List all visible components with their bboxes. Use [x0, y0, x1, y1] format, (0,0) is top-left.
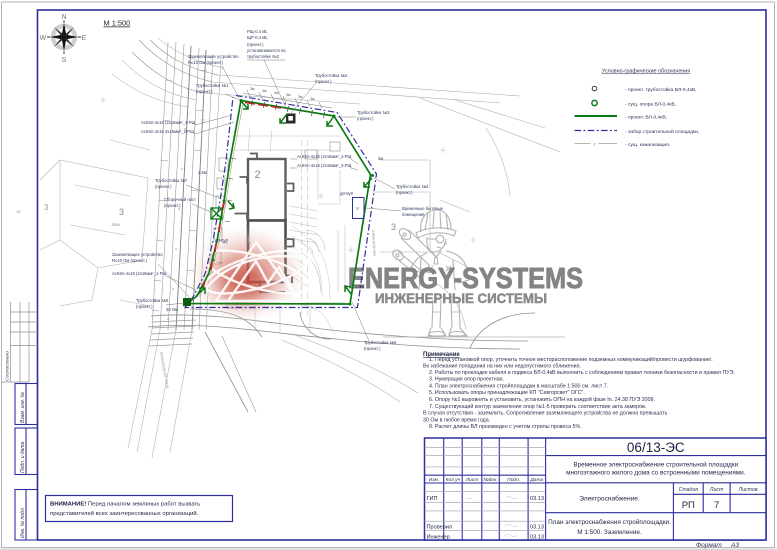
svg-text:Стадия: Стадия	[679, 487, 699, 493]
svg-text:ИНЖЕНЕРНЫЕ СИСТЕМЫ: ИНЖЕНЕРНЫЕ СИСТЕМЫ	[375, 291, 547, 306]
svg-text:Сборочный пост: Сборочный пост	[164, 197, 196, 202]
svg-text:(проект.): (проект.)	[136, 304, 153, 309]
svg-text:Трубостойка №1: Трубостойка №1	[196, 83, 229, 88]
svg-text:06/13-ЭС: 06/13-ЭС	[627, 440, 685, 455]
svg-text:V: V	[356, 206, 359, 211]
svg-text:1.5м: 1.5м	[355, 284, 364, 289]
svg-text:03.13: 03.13	[530, 535, 544, 541]
svg-text:АсКSп-4х16 (2х16мм²_1-РЩ: АсКSп-4х16 (2х16мм²_1-РЩ	[297, 154, 351, 159]
svg-text:Трубостойка №4: Трубостойка №4	[396, 184, 429, 189]
svg-text:- проект. трубостойка ВЛ-0,4кВ: - проект. трубостойка ВЛ-0,4кВ,	[625, 86, 696, 93]
svg-text:ВНИМАНИЕ! Перед началом землян: ВНИМАНИЕ! Перед началом земляных работ в…	[50, 502, 200, 508]
svg-text:Трубостойка №3: Трубостойка №3	[357, 110, 390, 115]
svg-text:12: 12	[16, 209, 21, 214]
svg-text:R≤10 Ом (проект.): R≤10 Ом (проект.)	[188, 60, 224, 65]
svg-text:- сущ. опора ВЛ-0,4кВ,: - сущ. опора ВЛ-0,4кВ,	[625, 101, 676, 107]
svg-text:03.13: 03.13	[530, 525, 544, 531]
svg-text:Трубостойка №6: Трубостойка №6	[136, 298, 169, 303]
svg-text:N: N	[61, 14, 66, 21]
svg-text:Во избежание попадания на них: Во избежание попадания на них или недопу…	[423, 364, 581, 370]
svg-text:03.13: 03.13	[530, 496, 544, 502]
svg-text:3м: 3м	[298, 95, 303, 99]
svg-text:План электроснабжения стройпло: План электроснабжения стройплощадки.	[548, 518, 671, 526]
svg-text:- забор строительной площадки,: - забор строительной площадки,	[625, 128, 699, 135]
svg-text:(проект.): (проект.)	[396, 190, 413, 195]
svg-text:Кол.уч: Кол.уч	[446, 477, 461, 483]
svg-text:Условно-графические обозначени: Условно-графические обозначения	[602, 69, 691, 75]
svg-text:5. Использовать опоры принад: 5. Использовать опоры принадлежащие КП "…	[429, 390, 585, 396]
svg-text:30 Ом в любое время года.: 30 Ом в любое время года.	[423, 418, 490, 424]
svg-text:W: W	[40, 35, 47, 42]
svg-text:Временное электроснабжение стр: Временное электроснабжение строительной …	[573, 461, 738, 469]
svg-text:АсКSп-4х16 3х16мм²_2-РЩ: АсКSп-4х16 3х16мм²_2-РЩ	[141, 129, 194, 134]
svg-text:представителей всех заинтересо: представителей всех заинтересованных орг…	[50, 510, 199, 517]
svg-text:8. Расчет длины ВЛ произведе: 8. Расчет длины ВЛ произведен с учетом с…	[429, 424, 582, 430]
svg-text:(проект.): (проект.)	[155, 184, 172, 189]
svg-text:трубостойке №2: трубостойке №2	[247, 54, 280, 59]
svg-text:Временные бытовые: Временные бытовые	[402, 206, 444, 211]
svg-text:3м: 3м	[262, 89, 267, 93]
svg-text:Лист: Лист	[709, 487, 724, 493]
svg-text:ЩР-0,4 кВ,: ЩР-0,4 кВ,	[247, 35, 268, 40]
svg-text:3: 3	[119, 207, 124, 217]
svg-text:R≤10 Ом (проект.): R≤10 Ом (проект.)	[112, 258, 148, 263]
svg-text:30 Ом: 30 Ом	[166, 307, 178, 312]
svg-text:РЩ-0,4 кВ,: РЩ-0,4 кВ,	[247, 29, 268, 34]
svg-text:S: S	[62, 57, 67, 64]
svg-text:№док.: №док.	[483, 477, 497, 483]
svg-text:Формат: Формат	[696, 542, 722, 549]
svg-text:7. Существующий контур зазем: 7. Существующий контур заземления опор №…	[429, 403, 646, 410]
svg-text:Согласовано: Согласовано	[5, 351, 11, 381]
svg-text:3м: 3м	[310, 97, 315, 101]
svg-text:(проект.): (проект.)	[247, 42, 264, 47]
svg-text:РП: РП	[682, 500, 695, 511]
svg-text:Трубостойка №2: Трубостойка №2	[315, 73, 348, 78]
svg-text:Инв. № подл.: Инв. № подл.	[20, 507, 26, 538]
svg-text:Инженер: Инженер	[427, 535, 450, 541]
svg-text:3.5м: 3.5м	[198, 170, 207, 175]
svg-text:Заземляющее устройство: Заземляющее устройство	[188, 54, 239, 59]
svg-text:Заземляющее устройство: Заземляющее устройство	[112, 252, 163, 257]
svg-text:д0-0у0: д0-0у0	[215, 238, 229, 243]
svg-text:Электроснабжение.: Электроснабжение.	[579, 495, 640, 503]
svg-text:АсКSп-4х16 (2х16мм²_1-РЩ: АсКSп-4х16 (2х16мм²_1-РЩ	[112, 271, 166, 276]
svg-text:устанавливается на: устанавливается на	[247, 48, 286, 53]
svg-text:(проект.): (проект.)	[315, 79, 332, 84]
svg-text:5мж: 5мж	[112, 222, 120, 227]
svg-text:1. Перед установкой опор, ут: 1. Перед установкой опор, уточнить точно…	[429, 356, 713, 363]
svg-text:М 1:500: М 1:500	[104, 19, 131, 28]
svg-text:3: 3	[391, 222, 396, 232]
svg-text:Дата: Дата	[529, 477, 543, 483]
svg-text:(проект.): (проект.)	[196, 89, 213, 94]
svg-text:Листов: Листов	[738, 487, 758, 493]
svg-text:- сущ. канализация.: - сущ. канализация.	[625, 143, 670, 148]
svg-text:АсКSп-4х16 (2х16мм²_1-РЩ: АсКSп-4х16 (2х16мм²_1-РЩ	[141, 120, 195, 125]
svg-text:многоэтажного жилого дома со в: многоэтажного жилого дома со встроенными…	[566, 470, 746, 477]
svg-text:3м: 3м	[250, 87, 255, 91]
svg-text:(проект.): (проект.)	[364, 346, 381, 351]
svg-text:2. Работы по прокладке кабел: 2. Работы по прокладке кабеля и подвеса …	[429, 370, 735, 376]
svg-text:4. План электроснабжения стр: 4. План электроснабжения стройплощадки в…	[429, 383, 608, 390]
svg-text:7: 7	[714, 500, 719, 511]
svg-text:Подп.: Подп.	[507, 477, 520, 483]
svg-text:Подп. и дата: Подп. и дата	[20, 441, 26, 473]
svg-text:3. Нумерация опор проектная.: 3. Нумерация опор проектная.	[429, 377, 504, 383]
svg-text:Трубостойка №7: Трубостойка №7	[155, 178, 188, 183]
svg-text:Лист: Лист	[465, 477, 479, 483]
svg-text:М 1:500. Заземление.: М 1:500. Заземление.	[577, 529, 642, 536]
svg-text:Проверил: Проверил	[427, 525, 453, 531]
svg-text:3м: 3м	[274, 91, 279, 95]
svg-text:E: E	[82, 35, 87, 42]
svg-text:- проект. ВЛ-0,4кВ,: - проект. ВЛ-0,4кВ,	[625, 114, 667, 120]
svg-text:помещения: помещения	[402, 212, 424, 217]
svg-text:Взам. инв. №: Взам. инв. №	[20, 391, 26, 423]
svg-text:6. Опору №1 выровнять и уста: 6. Опору №1 выровнять и установить, уста…	[429, 396, 655, 403]
svg-text:д0-0у0: д0-0у0	[340, 191, 354, 196]
svg-text:АсКSп-4х16 (2х16мм²_3-РЩ: АсКSп-4х16 (2х16мм²_3-РЩ	[297, 163, 351, 168]
svg-text:3м: 3м	[378, 156, 383, 161]
svg-text:2: 2	[255, 169, 261, 181]
svg-text:3м: 3м	[286, 93, 291, 97]
svg-text:Изм.: Изм.	[429, 477, 439, 483]
svg-text:3: 3	[44, 203, 49, 212]
svg-text:ГИП: ГИП	[427, 496, 438, 502]
svg-text:В случая отсутствия - заземлит: В случая отсутствия - заземлить. Сопроти…	[423, 410, 668, 417]
svg-text:(проект.): (проект.)	[357, 116, 374, 121]
svg-text:А3: А3	[730, 542, 739, 549]
svg-text:(проект.): (проект.)	[164, 203, 181, 208]
